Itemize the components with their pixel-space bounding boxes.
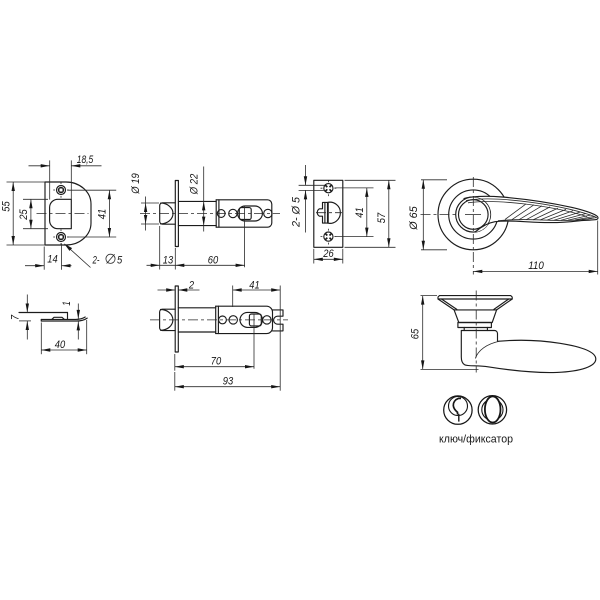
svg-text:110: 110 [528,260,544,272]
svg-text:93: 93 [223,376,234,388]
svg-text:18,5: 18,5 [77,154,94,166]
svg-text:26: 26 [322,248,334,260]
svg-text:14: 14 [47,254,57,266]
svg-text:65: 65 [409,328,421,339]
svg-text:Ø 65: Ø 65 [408,206,420,231]
svg-text:70: 70 [211,355,222,367]
svg-text:41: 41 [97,209,109,219]
svg-text:40: 40 [55,339,66,351]
svg-text:57: 57 [376,212,388,223]
svg-text:41: 41 [354,207,366,217]
svg-text:13: 13 [163,255,174,267]
svg-text:Ø 19: Ø 19 [130,173,142,195]
svg-text:2- Ø 5: 2- Ø 5 [291,196,303,228]
svg-text:60: 60 [208,255,219,267]
svg-text:2-: 2- [92,255,100,267]
svg-text:25: 25 [18,209,30,221]
svg-text:Ø 22: Ø 22 [189,173,201,195]
svg-text:55: 55 [1,201,13,212]
svg-text:2: 2 [188,279,195,291]
svg-text:1: 1 [61,301,73,306]
svg-text:ключ/фиксатор: ключ/фиксатор [439,434,513,446]
svg-text:41: 41 [249,279,259,291]
svg-text:7: 7 [10,314,22,320]
svg-text:5: 5 [117,255,123,267]
